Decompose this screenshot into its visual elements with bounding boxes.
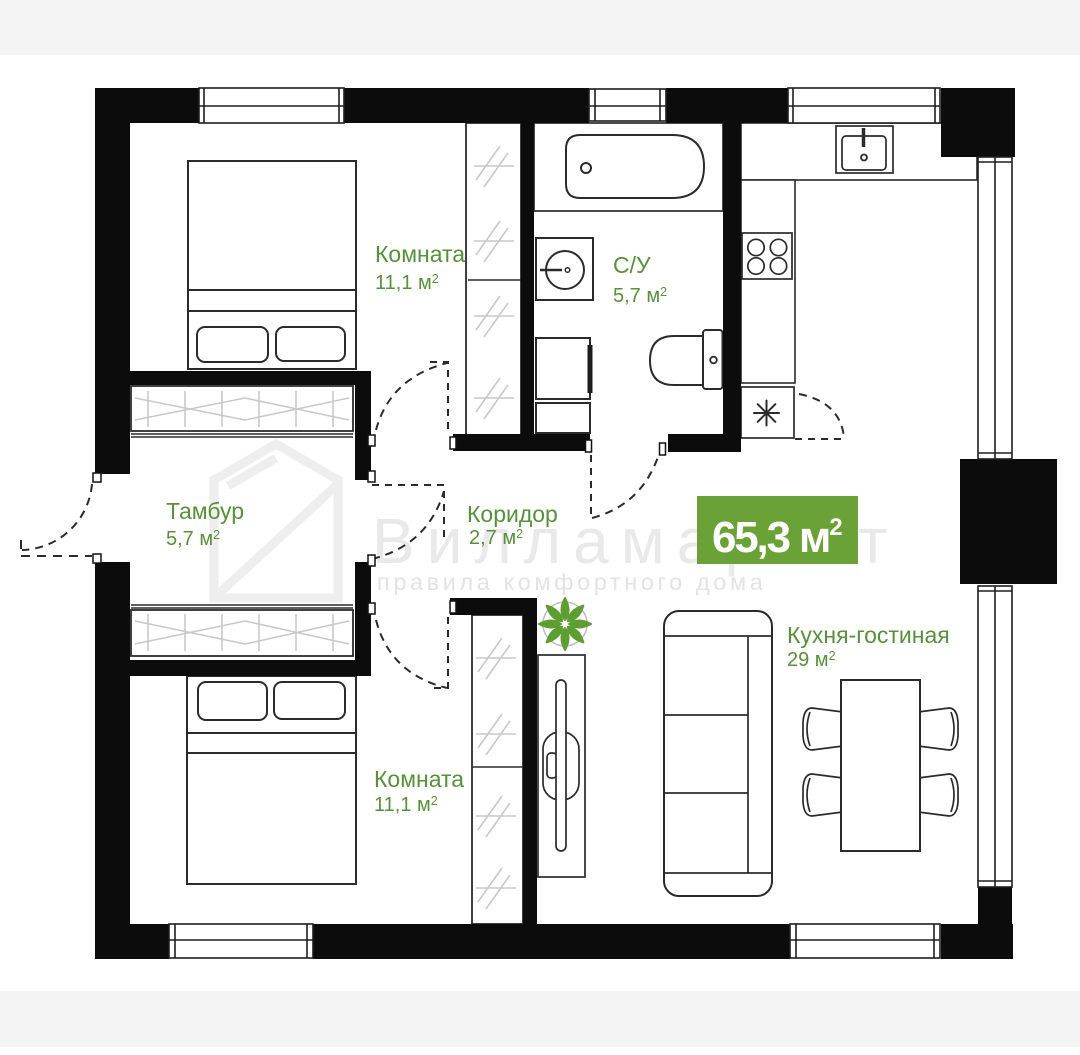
svg-text:Комната: Комната — [374, 766, 464, 792]
svg-text:правила комфортного дома: правила комфортного дома — [377, 569, 766, 595]
svg-text:Кухня-гостиная: Кухня-гостиная — [787, 622, 950, 648]
svg-text:Комната: Комната — [375, 241, 465, 267]
svg-text:Коридор: Коридор — [467, 501, 558, 527]
svg-text:11,1 м2: 11,1 м2 — [375, 272, 439, 294]
svg-text:Тамбур: Тамбур — [166, 498, 244, 524]
svg-text:11,1 м2: 11,1 м2 — [374, 794, 438, 816]
svg-text:29 м2: 29 м2 — [787, 649, 836, 671]
svg-text:2,7 м2: 2,7 м2 — [469, 527, 523, 549]
svg-text:5,7 м2: 5,7 м2 — [166, 528, 220, 550]
svg-text:65,3 м2: 65,3 м2 — [712, 513, 842, 562]
svg-text:5,7 м2: 5,7 м2 — [613, 285, 667, 307]
svg-text:С/У: С/У — [613, 252, 651, 278]
